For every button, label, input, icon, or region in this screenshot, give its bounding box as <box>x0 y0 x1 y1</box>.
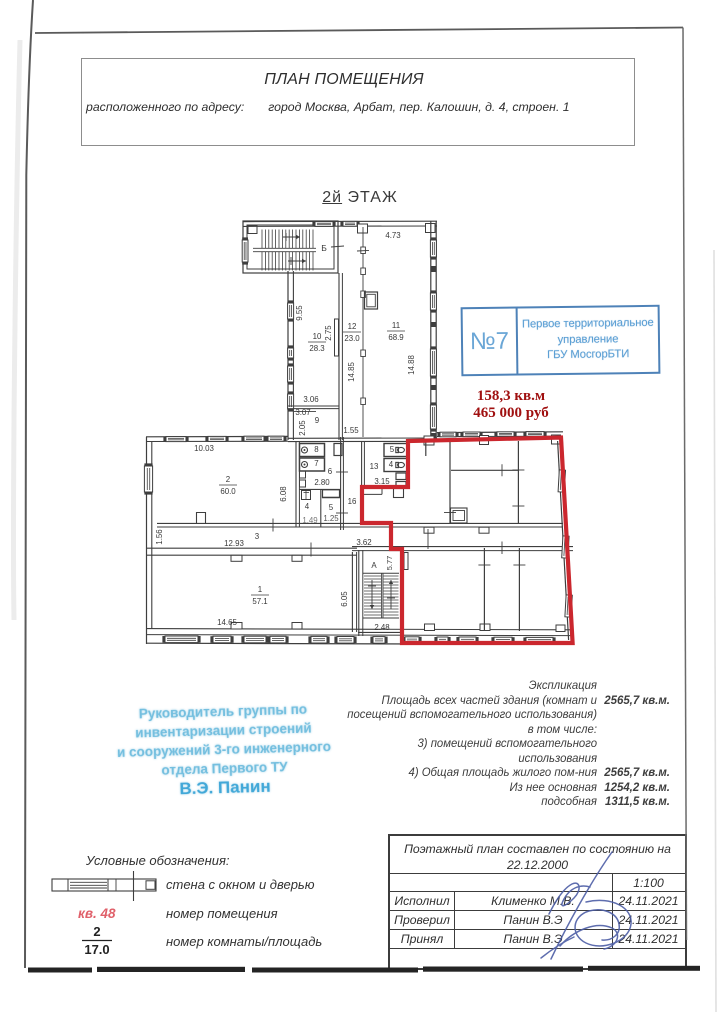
svg-text:3.07: 3.07 <box>295 408 310 417</box>
svg-text:6.05: 6.05 <box>340 591 349 607</box>
svg-text:5.77: 5.77 <box>385 556 394 570</box>
svg-text:9: 9 <box>315 416 320 425</box>
svg-text:10: 10 <box>313 332 322 341</box>
svg-text:12.93: 12.93 <box>224 539 244 548</box>
svg-text:2: 2 <box>226 475 230 484</box>
svg-text:4.73: 4.73 <box>385 231 401 240</box>
svg-text:А: А <box>371 561 377 570</box>
svg-text:4: 4 <box>305 502 310 511</box>
svg-text:14.65: 14.65 <box>217 618 237 627</box>
svg-text:8: 8 <box>314 445 319 454</box>
svg-text:1.56: 1.56 <box>155 529 164 545</box>
svg-text:9.55: 9.55 <box>295 305 304 321</box>
svg-text:2.05: 2.05 <box>298 420 307 436</box>
svg-text:3.62: 3.62 <box>356 538 371 547</box>
svg-text:11: 11 <box>392 321 400 330</box>
svg-text:3: 3 <box>255 532 260 541</box>
svg-text:1.25: 1.25 <box>323 514 339 523</box>
svg-text:6.08: 6.08 <box>279 486 288 502</box>
svg-text:2.80: 2.80 <box>314 478 330 487</box>
svg-text:10.03: 10.03 <box>194 444 214 453</box>
svg-text:23.0: 23.0 <box>344 334 360 343</box>
svg-text:1.49: 1.49 <box>302 516 318 525</box>
svg-text:6: 6 <box>328 467 333 476</box>
svg-text:2.48: 2.48 <box>374 623 390 632</box>
svg-text:57.1: 57.1 <box>252 597 267 606</box>
svg-text:5: 5 <box>390 445 395 454</box>
svg-text:7: 7 <box>314 459 318 468</box>
svg-text:Б: Б <box>321 243 327 253</box>
svg-text:68.9: 68.9 <box>388 333 404 342</box>
svg-text:1.55: 1.55 <box>343 426 359 435</box>
svg-text:12: 12 <box>348 322 357 331</box>
svg-text:14.88: 14.88 <box>407 355 416 375</box>
svg-text:1: 1 <box>258 585 262 594</box>
svg-text:14.85: 14.85 <box>347 362 356 382</box>
svg-text:4: 4 <box>389 460 394 469</box>
svg-text:5: 5 <box>329 503 334 512</box>
svg-text:28.3: 28.3 <box>309 344 325 353</box>
svg-text:2.75: 2.75 <box>324 325 333 341</box>
svg-text:16: 16 <box>348 497 357 506</box>
svg-text:3.06: 3.06 <box>303 395 319 404</box>
svg-text:13: 13 <box>370 462 379 471</box>
svg-text:3.15: 3.15 <box>374 477 390 486</box>
svg-text:60.0: 60.0 <box>220 487 236 496</box>
